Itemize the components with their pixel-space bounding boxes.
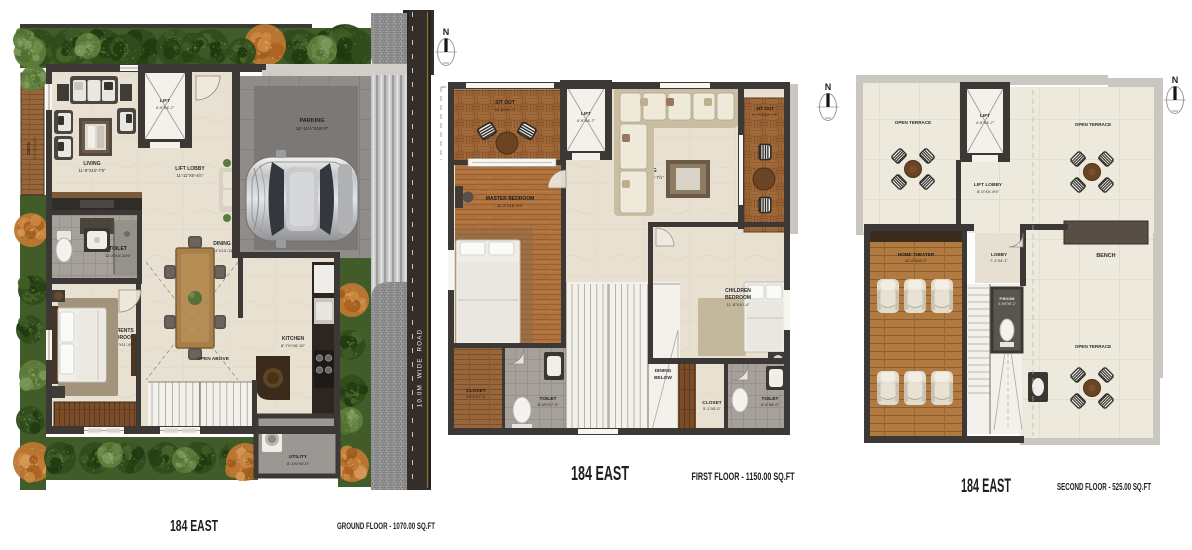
svg-text:8'-7½"X8'-10": 8'-7½"X8'-10" [281,343,306,348]
svg-text:SIT OUT: SIT OUT [756,106,774,111]
svg-text:4'-9"X4'-7": 4'-9"X4'-7" [156,105,175,110]
svg-text:TOILET: TOILET [762,396,779,402]
svg-text:TOILET: TOILET [109,246,127,252]
svg-text:LIFT: LIFT [160,98,170,104]
svg-text:3'-1"X10'-4¾": 3'-1"X10'-4¾" [33,136,37,160]
svg-text:8'-5"X5'-4½": 8'-5"X5'-4½" [977,189,1000,194]
svg-text:PARKING: PARKING [300,118,325,124]
svg-text:11'-8"X15'-4½": 11'-8"X15'-4½" [497,203,524,208]
svg-text:LIFT: LIFT [581,111,591,117]
svg-text:OPEN TERRACE: OPEN TERRACE [1075,344,1112,349]
svg-text:BENCH: BENCH [1096,253,1115,259]
svg-text:11'-8"X10'-4": 11'-8"X10'-4" [727,302,750,307]
svg-text:OPEN TERRACE: OPEN TERRACE [895,120,932,125]
svg-text:CHILDREN: CHILDREN [725,288,751,294]
svg-text:12'-0"X16'-0": 12'-0"X16'-0" [905,259,928,263]
svg-text:10.0M WIDE ROAD: 10.0M WIDE ROAD [417,329,424,408]
svg-text:DINING: DINING [213,241,231,247]
svg-text:SIT OUT: SIT OUT [495,100,515,106]
svg-text:7'-1"X4'-1": 7'-1"X4'-1" [990,259,1008,263]
svg-text:FIRST FLOOR - 1150.00 SQ.FT: FIRST FLOOR - 1150.00 SQ.FT [692,471,795,483]
svg-text:4'-9"X4'-7": 4'-9"X4'-7" [577,118,596,123]
svg-text:11'-8"X4'-11½": 11'-8"X4'-11½" [105,253,131,258]
svg-text:LIFT LOBBY: LIFT LOBBY [175,166,205,172]
svg-text:184 EAST: 184 EAST [961,476,1011,497]
svg-text:4'-9"X4'-7": 4'-9"X4'-7" [976,120,995,125]
svg-text:DECK: DECK [26,141,31,155]
svg-text:SECOND FLOOR - 525.00 SQ.FT: SECOND FLOOR - 525.00 SQ.FT [1057,482,1151,493]
svg-text:MASTER BEDROOM: MASTER BEDROOM [486,196,535,202]
svg-text:3'-4½"X5'-2": 3'-4½"X5'-2" [998,302,1015,306]
svg-text:LIFT: LIFT [980,113,990,119]
svg-text:6'-0"X8'-0": 6'-0"X8'-0" [761,403,779,407]
svg-text:LOBBY: LOBBY [991,252,1007,257]
svg-text:BEDROOM: BEDROOM [725,295,751,301]
svg-text:BELOW: BELOW [654,375,672,381]
svg-text:P.ROOM: P.ROOM [1000,297,1015,301]
svg-text:LIVING: LIVING [83,161,100,167]
svg-text:KITCHEN: KITCHEN [282,336,305,342]
svg-text:184 EAST: 184 EAST [571,463,629,485]
svg-text:4'-7½"X10'-7½": 4'-7½"X10'-7½" [752,113,779,117]
svg-text:OPEN ABOVE: OPEN ABOVE [197,356,230,362]
svg-text:DINING: DINING [655,368,672,374]
svg-text:16'-11½"X18'-0": 16'-11½"X18'-0" [296,125,329,131]
svg-text:8'-1½"X4'-0": 8'-1½"X4'-0" [287,461,310,466]
svg-text:6'-4½"X7'-3": 6'-4½"X7'-3" [538,403,559,407]
svg-text:CLOSET: CLOSET [702,400,722,406]
svg-text:5'-1"X8'-0": 5'-1"X8'-0" [703,407,721,411]
svg-text:11'-8"X10'-7'6": 11'-8"X10'-7'6" [79,168,106,173]
svg-text:5'3¾"X7'-3": 5'3¾"X7'-3" [466,395,486,399]
svg-text:UTILITY: UTILITY [289,454,308,460]
svg-text:HOME THEATER: HOME THEATER [898,252,935,257]
svg-text:GROUND FLOOR - 1070.00 SQ.FT: GROUND FLOOR - 1070.00 SQ.FT [337,521,435,532]
svg-text:OPEN TERRACE: OPEN TERRACE [1075,122,1112,127]
svg-text:11'-11"X6'-4½": 11'-11"X6'-4½" [177,173,205,178]
svg-text:TOILET: TOILET [540,396,557,402]
svg-text:184 EAST: 184 EAST [170,518,218,535]
svg-text:LIFT LOBBY: LIFT LOBBY [974,182,1003,188]
svg-text:CLOSET: CLOSET [466,388,486,394]
svg-text:11'-8"X4'-7": 11'-8"X4'-7" [495,107,516,112]
